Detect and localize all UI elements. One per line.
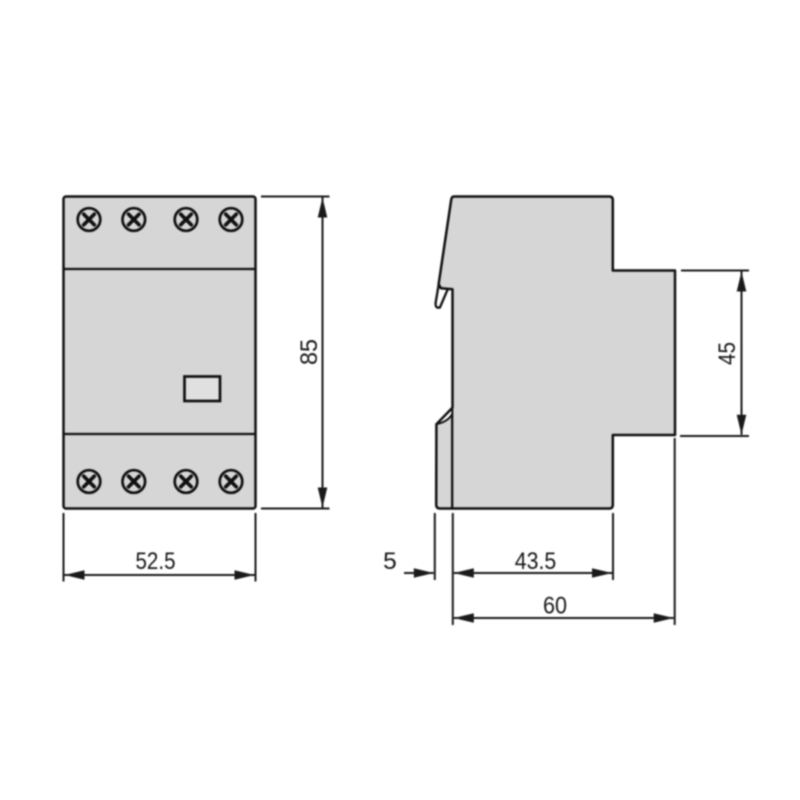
svg-text:85: 85 [296, 339, 323, 365]
svg-text:60: 60 [543, 593, 567, 620]
svg-text:5: 5 [383, 548, 397, 575]
svg-text:43.5: 43.5 [515, 548, 557, 575]
svg-text:45: 45 [714, 342, 741, 365]
svg-text:52.5: 52.5 [136, 548, 176, 575]
